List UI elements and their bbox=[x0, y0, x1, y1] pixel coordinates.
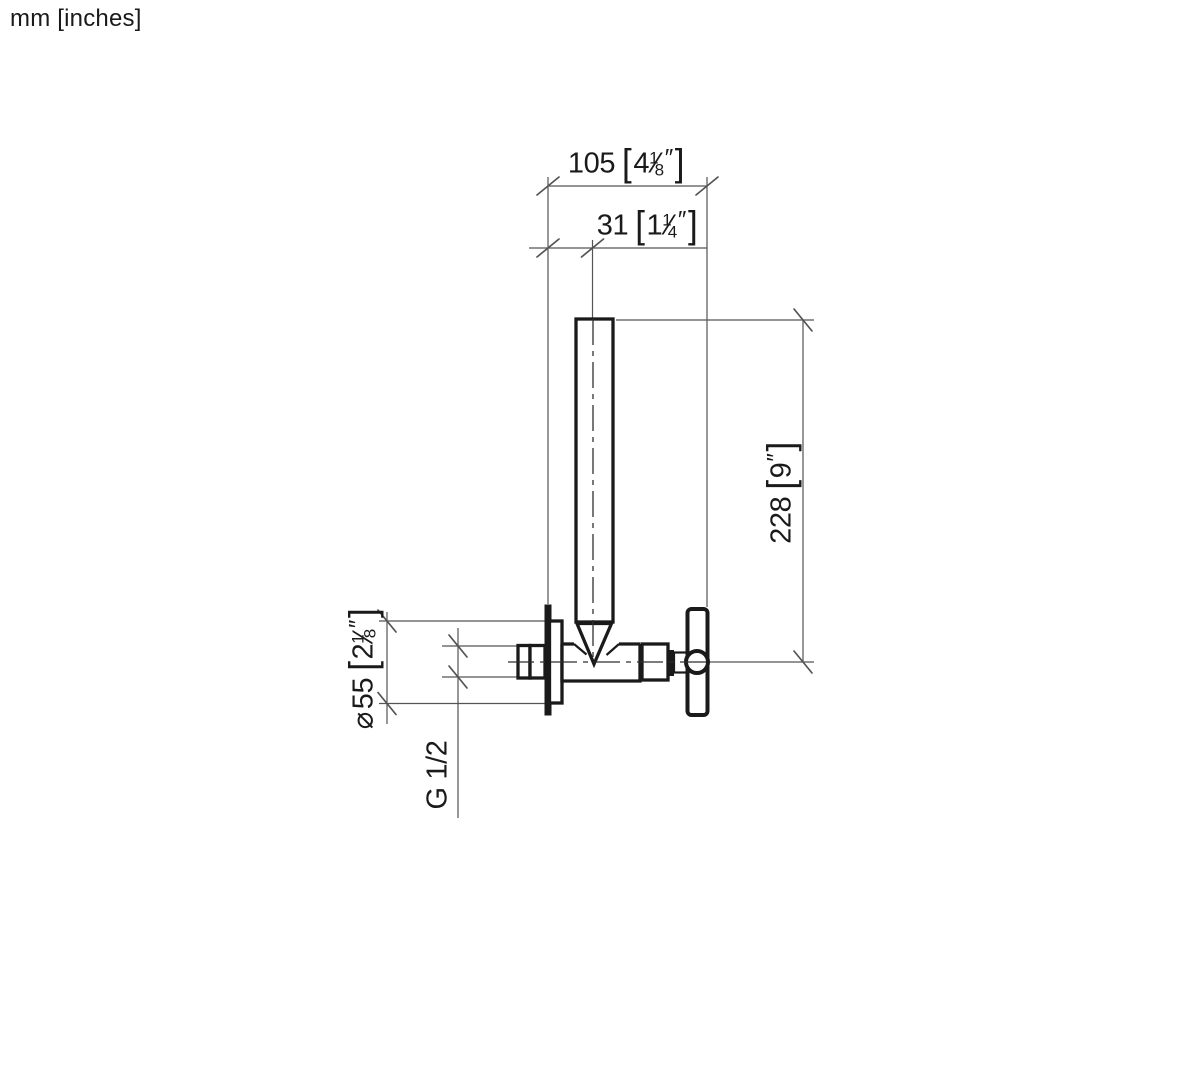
inch-mark: ″ bbox=[345, 620, 372, 628]
bracket-open: [ bbox=[344, 661, 382, 670]
inch-mark: ″ bbox=[763, 453, 790, 461]
bracket-open: [ bbox=[622, 144, 631, 182]
technical-drawing-page: mm [inches] 105[41⁄8″] 31[11⁄4″] 228[9″]… bbox=[0, 0, 1202, 1080]
mm-value: 55 bbox=[348, 678, 380, 709]
dimension-label-total-projection: 105[41⁄8″] bbox=[568, 146, 686, 181]
bracket-close: ] bbox=[688, 206, 697, 244]
bracket-open: [ bbox=[762, 480, 800, 489]
dimension-label-thread-connection: G 1/2 bbox=[424, 741, 453, 810]
thread-size: G 1/2 bbox=[422, 741, 454, 810]
dimension-label-outlet-offset: 31[11⁄4″] bbox=[597, 208, 700, 243]
inch-mark: ″ bbox=[665, 145, 673, 172]
bracket-close: ] bbox=[675, 144, 684, 182]
fraction-denominator: 4 bbox=[668, 223, 677, 242]
inch-mark: ″ bbox=[678, 207, 686, 234]
units-note: mm [inches] bbox=[10, 5, 142, 33]
fraction-denominator: 8 bbox=[655, 161, 664, 180]
inch-whole: 4 bbox=[633, 148, 649, 180]
angle-valve-drawing bbox=[518, 319, 708, 716]
dimension-label-flange-diameter: ⌀55[21⁄8″] bbox=[346, 607, 381, 730]
inch-whole: 1 bbox=[647, 210, 663, 242]
inch-whole: 9 bbox=[766, 463, 798, 479]
bracket-close: ] bbox=[762, 442, 800, 451]
mm-value: 105 bbox=[568, 148, 615, 180]
bracket-close: ] bbox=[344, 609, 382, 618]
fraction-denominator: 8 bbox=[361, 629, 380, 638]
dimension-label-total-height: 228[9″] bbox=[764, 440, 799, 544]
riser-pipe bbox=[576, 319, 613, 622]
bracket-open: [ bbox=[635, 206, 644, 244]
diameter-symbol: ⌀ bbox=[348, 712, 380, 729]
inch-whole: 2 bbox=[348, 644, 380, 660]
mm-value: 31 bbox=[597, 210, 628, 242]
mm-value: 228 bbox=[766, 497, 798, 544]
